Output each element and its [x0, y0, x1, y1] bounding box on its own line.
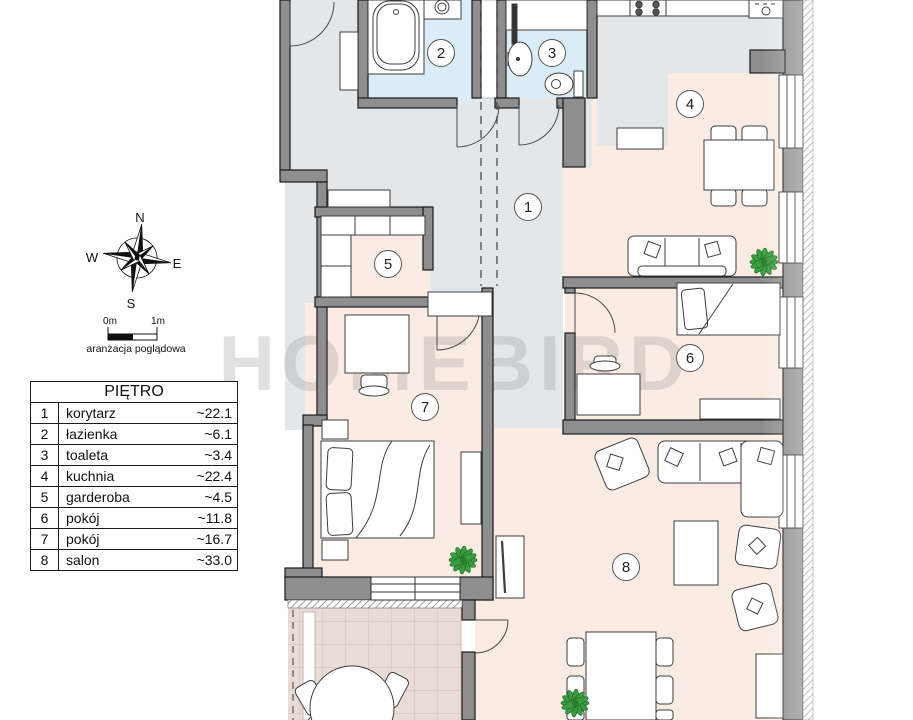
legend-row: 3toaleta~3.4	[31, 445, 237, 466]
hall-cabinet	[340, 32, 358, 90]
scale-end: 1m	[151, 316, 165, 327]
scale-start: 0m	[103, 316, 117, 327]
legend-row: 7pokój~16.7	[31, 529, 237, 550]
compass-rose: N E S W	[86, 210, 182, 311]
corridor-cabinet	[328, 190, 390, 207]
terrace-sill-hatch	[288, 600, 462, 608]
floor-plan-drawing: HOMEBIRD	[0, 0, 913, 720]
legend-row: 2łazienka~6.1	[31, 424, 237, 445]
legend-row: 6pokój~11.8	[31, 508, 237, 529]
legend-row: 1korytarz~22.1	[31, 403, 237, 424]
svg-text:4: 4	[686, 96, 694, 113]
legend-title: PIĘTRO	[31, 382, 237, 403]
bathtub	[368, 0, 424, 74]
bed-room7	[321, 441, 434, 538]
svg-text:1: 1	[524, 199, 532, 216]
sofa-kitchen	[628, 236, 736, 276]
room-label-2: 2	[428, 40, 455, 67]
floor-plan-page: HOMEBIRD	[0, 0, 913, 720]
stove	[630, 0, 666, 16]
room-label-7: 7	[412, 394, 439, 421]
nightstand	[322, 420, 348, 439]
compass-s: S	[127, 296, 136, 311]
compass-e: E	[173, 256, 182, 271]
wash-basin	[508, 42, 532, 76]
room-label-4: 4	[677, 91, 704, 118]
tv-unit	[496, 536, 524, 598]
shower-panel	[512, 4, 517, 44]
svg-text:3: 3	[548, 45, 556, 62]
coffee-table	[674, 521, 718, 585]
room-label-3: 3	[539, 40, 566, 67]
compass-n: N	[135, 210, 144, 225]
compass-w: W	[86, 250, 99, 265]
svg-text:2: 2	[437, 45, 445, 62]
utility-shaft	[480, 0, 498, 98]
toilet-bowl	[545, 71, 583, 97]
svg-text:5: 5	[384, 256, 392, 273]
scale-caption: aranżacja poglądowa	[86, 343, 185, 355]
shower-area	[506, 0, 587, 30]
room-label-5: 5	[375, 251, 402, 278]
svg-text:8: 8	[622, 559, 630, 576]
svg-text:7: 7	[421, 399, 429, 416]
kitchen-sideboard	[617, 128, 663, 149]
window-balcony-room7	[371, 577, 460, 600]
room-label-1: 1	[515, 194, 542, 221]
legend-row: 8salon~33.0	[31, 550, 237, 570]
scale-bar: 0m 1m aranżacja poglądowa	[86, 316, 185, 355]
legend-row: 4kuchnia~22.4	[31, 466, 237, 487]
legend-table: PIĘTRO 1korytarz~22.1 2łazienka~6.1 3toa…	[30, 381, 238, 571]
closet-nook	[428, 292, 492, 316]
legend-row: 5garderoba~4.5	[31, 487, 237, 508]
shelf-room7	[461, 452, 481, 524]
nightstand	[322, 540, 348, 560]
svg-text:6: 6	[686, 350, 694, 367]
room-label-8: 8	[613, 554, 640, 581]
washing-machine	[424, 0, 461, 19]
room-label-6: 6	[677, 345, 704, 372]
right-fade	[760, 0, 913, 720]
